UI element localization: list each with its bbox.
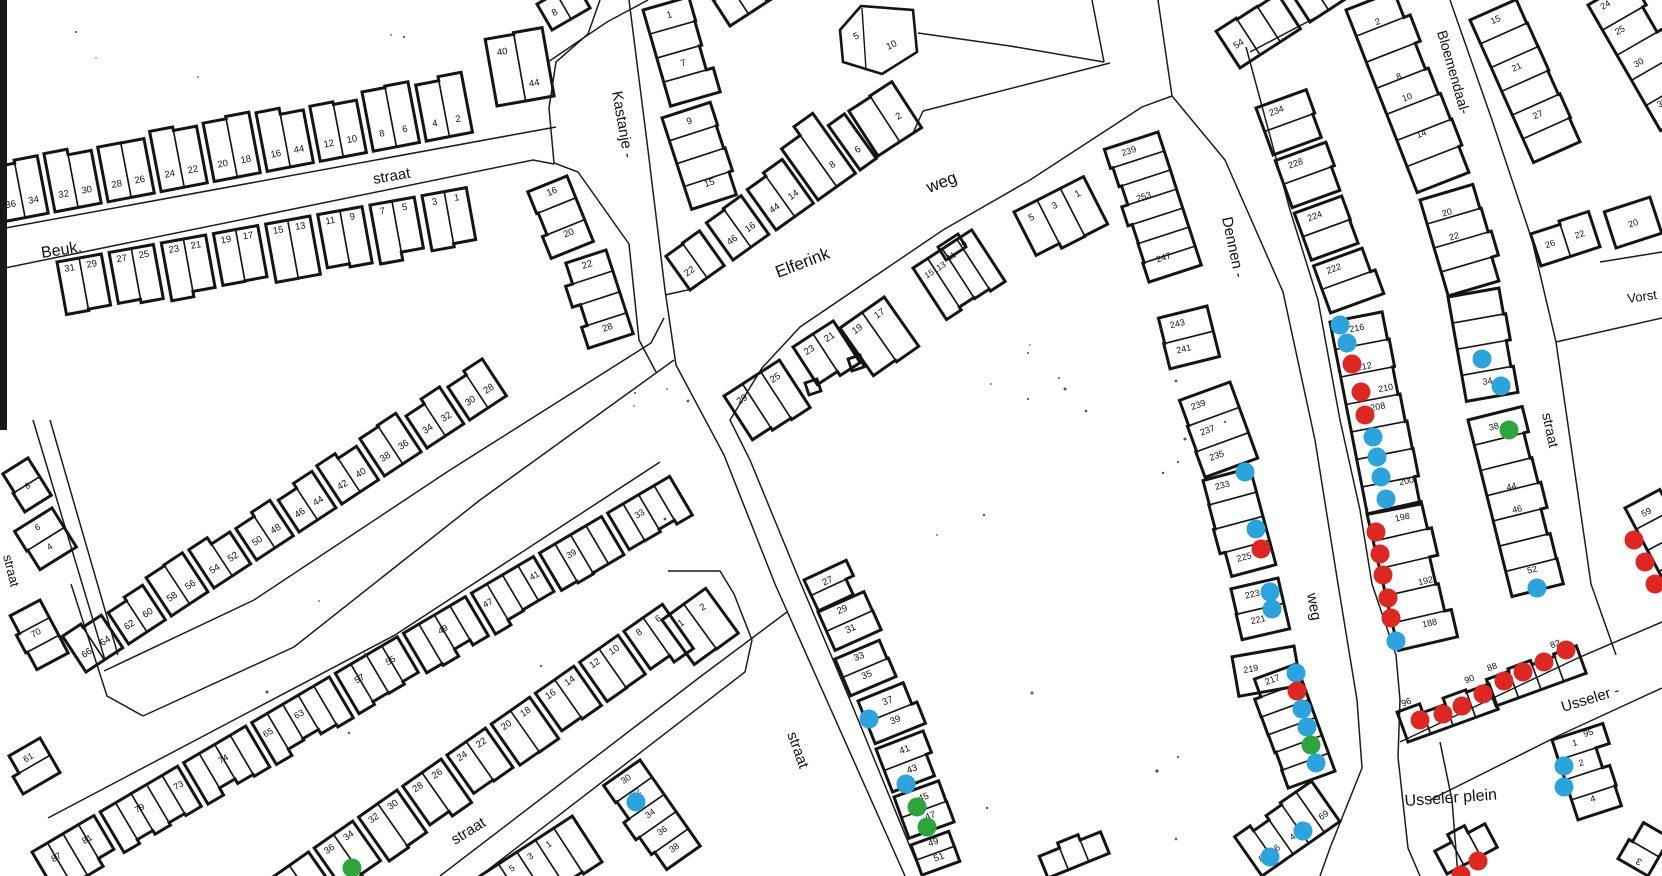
svg-text:44: 44 bbox=[528, 77, 540, 90]
svg-text:13: 13 bbox=[294, 220, 306, 233]
svg-text:28: 28 bbox=[110, 178, 122, 191]
svg-text:24: 24 bbox=[164, 168, 176, 181]
svg-text:22: 22 bbox=[187, 164, 199, 177]
svg-text:26: 26 bbox=[134, 174, 146, 187]
svg-text:27: 27 bbox=[116, 253, 128, 266]
svg-text:18: 18 bbox=[240, 154, 252, 167]
svg-text:23: 23 bbox=[168, 243, 180, 256]
svg-text:44: 44 bbox=[293, 143, 305, 156]
svg-text:30: 30 bbox=[81, 184, 93, 197]
svg-text:12: 12 bbox=[323, 138, 335, 151]
svg-text:11: 11 bbox=[325, 215, 337, 228]
svg-text:40: 40 bbox=[496, 46, 508, 59]
svg-text:17: 17 bbox=[242, 230, 254, 243]
svg-text:20: 20 bbox=[217, 158, 229, 171]
svg-text:36: 36 bbox=[4, 198, 16, 211]
svg-text:15: 15 bbox=[272, 224, 284, 237]
svg-text:31: 31 bbox=[64, 262, 76, 275]
svg-text:19: 19 bbox=[220, 234, 232, 247]
svg-text:32: 32 bbox=[57, 188, 69, 201]
svg-text:16: 16 bbox=[270, 148, 282, 161]
svg-text:10: 10 bbox=[346, 133, 358, 146]
svg-text:29: 29 bbox=[86, 258, 98, 271]
svg-text:21: 21 bbox=[190, 239, 202, 252]
svg-text:34: 34 bbox=[27, 194, 39, 207]
svg-text:25: 25 bbox=[138, 249, 150, 262]
